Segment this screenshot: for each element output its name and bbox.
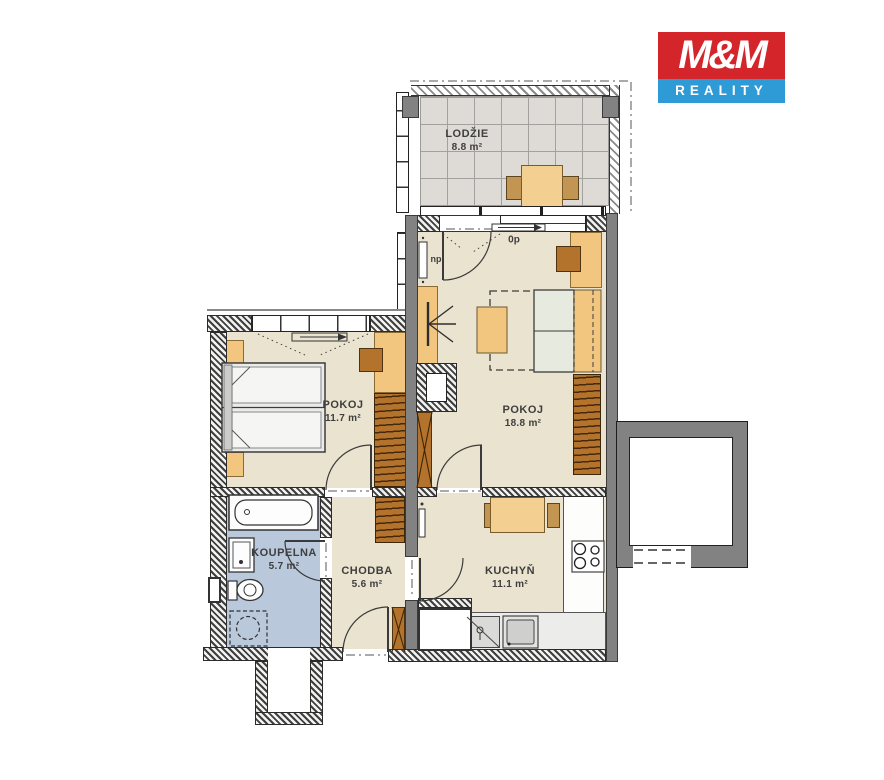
elevator-door-opening	[633, 546, 691, 568]
bedroom-dresser	[359, 348, 383, 372]
wall	[586, 215, 607, 232]
room-label-koupelna: KOUPELNA 5.7 m²	[251, 546, 317, 574]
room-area: 8.8 m²	[445, 141, 488, 155]
wall	[416, 215, 440, 232]
room-label-kuchyn: KUCHYŇ 11.1 m²	[485, 564, 535, 592]
lower-niche	[268, 648, 310, 713]
annotation-0p: 0p	[508, 235, 520, 246]
room-label-chodba: CHODBA 5.6 m²	[341, 564, 392, 592]
loggia-table-icon	[521, 165, 563, 209]
bathroom-door-opening	[320, 538, 332, 578]
wall	[320, 578, 332, 649]
kitchen-chair-icon	[547, 503, 560, 528]
wall-niche-hatch	[208, 577, 221, 603]
loggia-railing-top	[411, 85, 620, 96]
room-label-pokoj-maly: POKOJ 11.7 m²	[322, 398, 363, 426]
hallway-wardrobe	[375, 497, 405, 543]
shaft-core	[426, 373, 447, 402]
living-dresser	[556, 246, 581, 272]
wall-stub	[402, 96, 419, 118]
elevator-cabin	[629, 437, 733, 546]
loggia-chair-icon	[561, 176, 579, 200]
logo-mm: M&M	[658, 32, 785, 79]
entrance-opening	[343, 649, 388, 662]
room-name: POKOJ	[502, 403, 543, 417]
room-name: LODŽIE	[445, 127, 488, 141]
room-label-pokoj-velky: POKOJ 18.8 m²	[502, 403, 543, 431]
wall	[370, 315, 408, 332]
kitchen-counter-right	[563, 495, 604, 618]
logo-reality: REALITY	[658, 79, 785, 103]
living-wardrobe	[573, 374, 601, 475]
wall	[320, 497, 332, 538]
kitchen-table-icon	[490, 497, 545, 533]
room-label-lodzie: LODŽIE 8.8 m²	[445, 127, 488, 155]
wall	[418, 598, 472, 608]
floorplan-page: LODŽIE 8.8 m² POKOJ 18.8 m² POKOJ 11.7 m…	[0, 0, 884, 780]
room-area: 11.7 m²	[322, 412, 363, 426]
wall	[207, 315, 252, 332]
bedroom-window	[252, 315, 370, 332]
room-area: 11.1 m²	[485, 578, 535, 592]
wall	[255, 712, 323, 725]
room-area: 5.7 m²	[251, 560, 317, 574]
balcony-door-opening	[440, 215, 500, 232]
room-area: 5.6 m²	[341, 578, 392, 592]
entry-niche	[418, 608, 472, 651]
room-name: POKOJ	[322, 398, 363, 412]
hallway-cabinet	[392, 607, 405, 652]
bedroom-wardrobe	[374, 393, 407, 487]
room-name: KOUPELNA	[251, 546, 317, 560]
facade-line	[207, 309, 408, 311]
wall	[210, 487, 325, 497]
room-name: KUCHYŇ	[485, 564, 535, 578]
room-name: CHODBA	[341, 564, 392, 578]
room-area: 18.8 m²	[502, 417, 543, 431]
annotation-np: np	[431, 254, 442, 264]
living-tall-cabinet	[417, 412, 432, 488]
living-window	[500, 215, 586, 232]
wall-stub	[602, 96, 619, 118]
wall	[482, 487, 606, 497]
